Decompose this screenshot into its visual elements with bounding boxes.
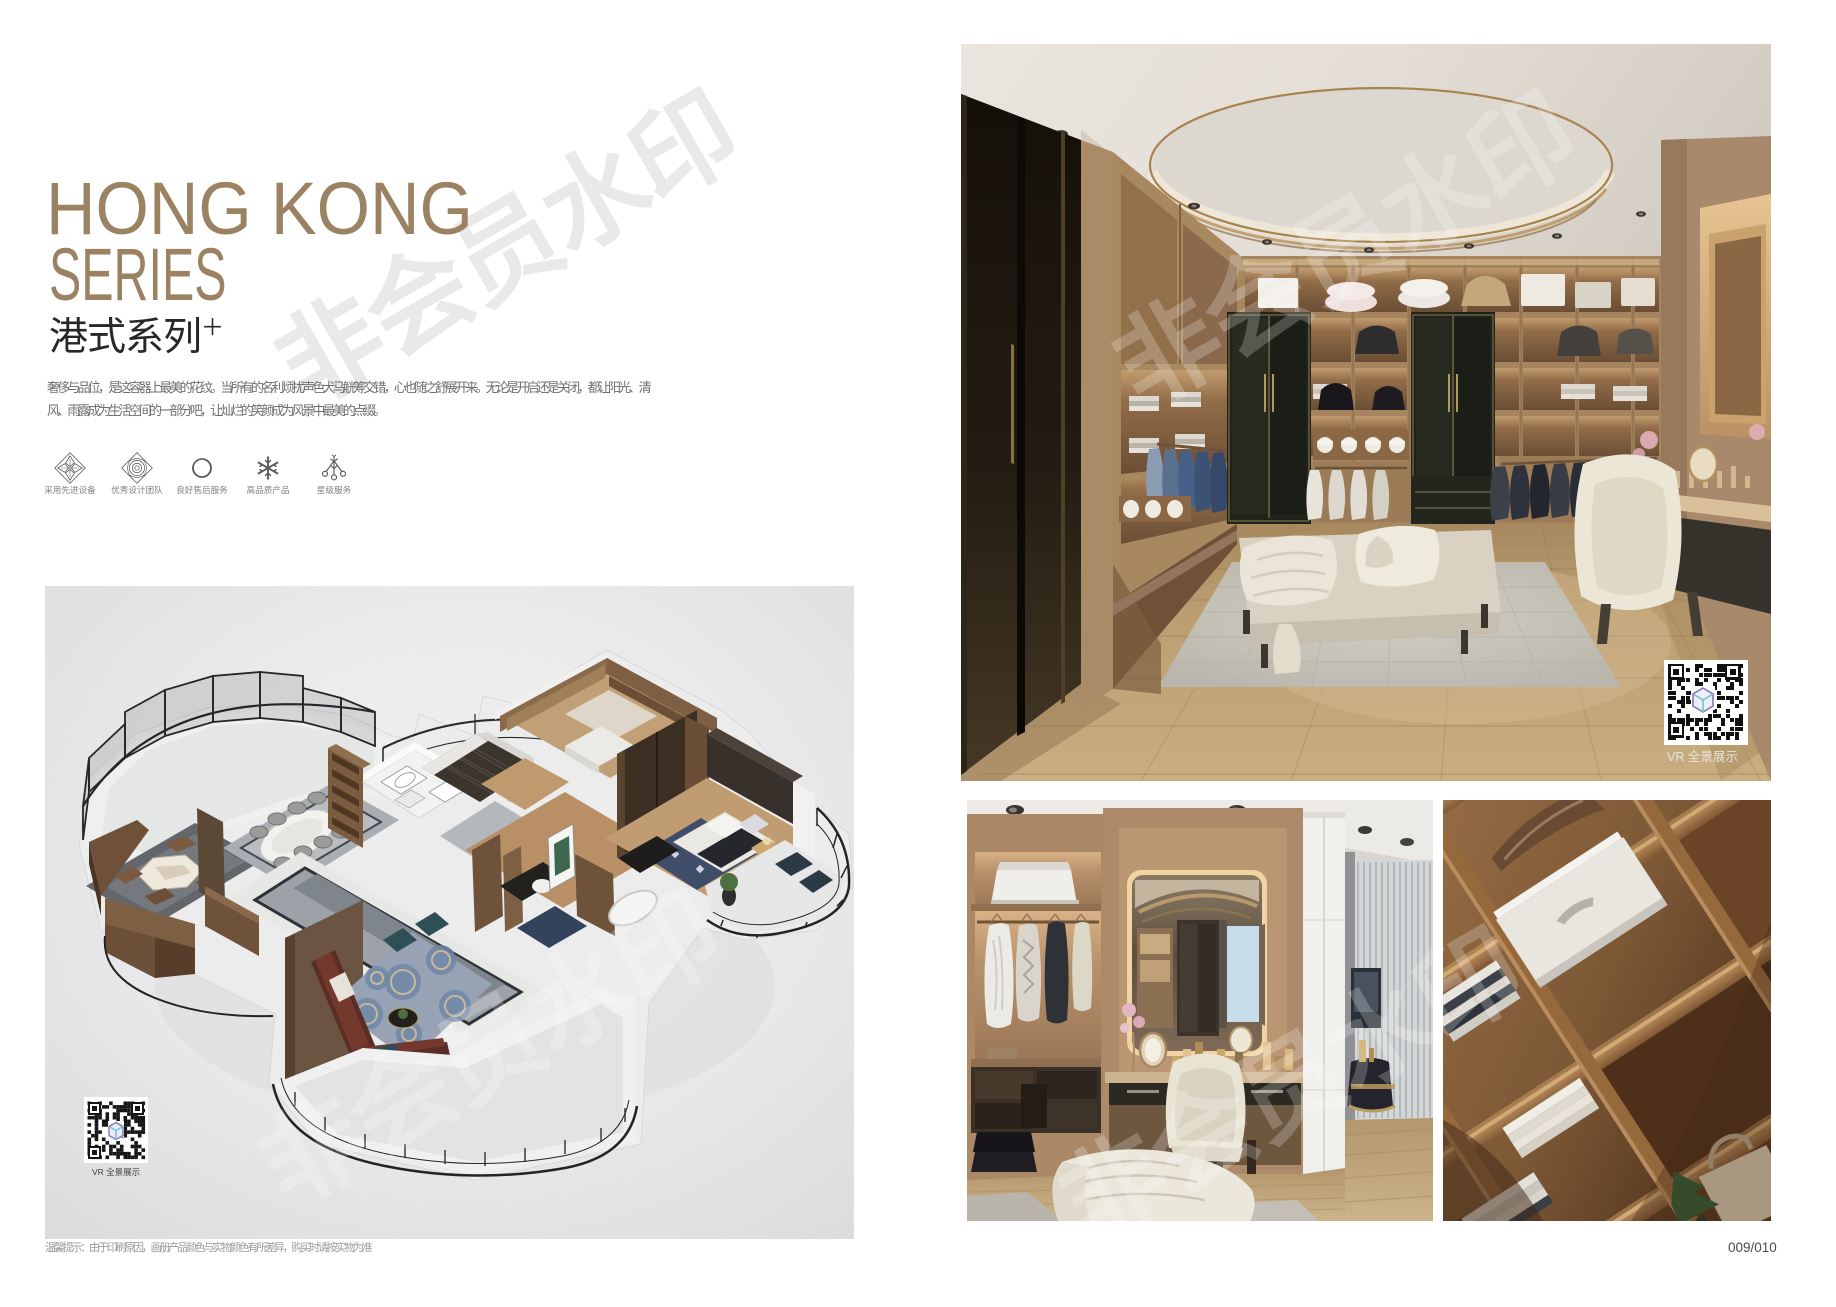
svg-text:高品质产品: 高品质产品 — [247, 484, 290, 495]
svg-text:优秀设计团队: 优秀设计团队 — [111, 484, 163, 495]
svg-text:星级服务: 星级服务 — [317, 484, 352, 495]
svg-text:良好售后服务: 良好售后服务 — [176, 484, 228, 495]
svg-text:VR 全景展示: VR 全景展示 — [1667, 749, 1738, 764]
svg-text:采用先进设备: 采用先进设备 — [44, 484, 96, 495]
svg-text:VR 全景展示: VR 全景展示 — [92, 1167, 140, 1177]
